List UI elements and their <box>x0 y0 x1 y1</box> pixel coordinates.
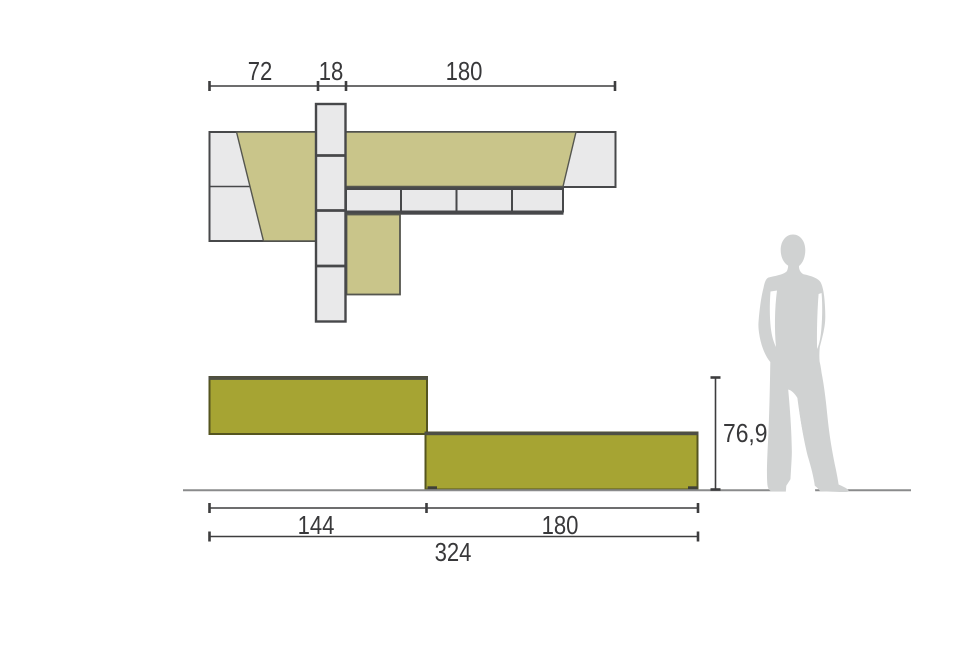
svg-text:76,9: 76,9 <box>723 418 768 448</box>
svg-text:18: 18 <box>319 57 344 86</box>
svg-text:72: 72 <box>248 57 273 86</box>
svg-text:180: 180 <box>446 57 483 86</box>
svg-text:324: 324 <box>435 538 472 567</box>
